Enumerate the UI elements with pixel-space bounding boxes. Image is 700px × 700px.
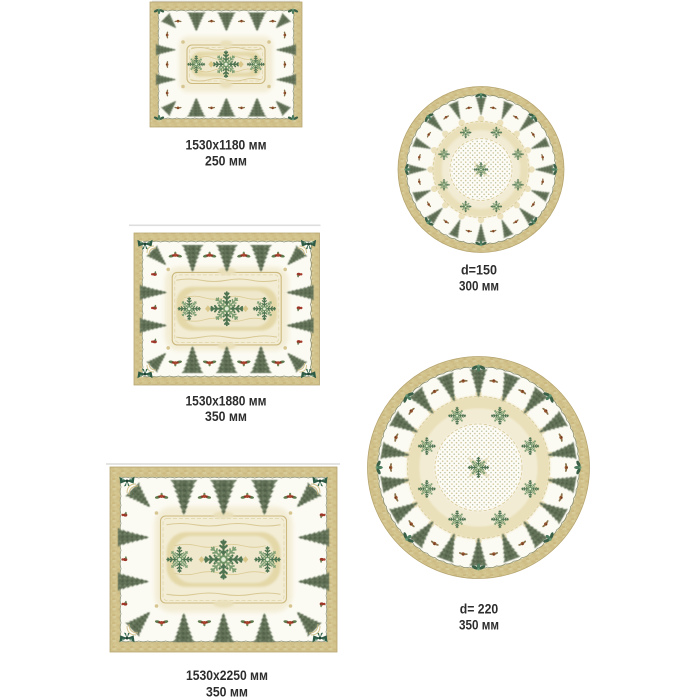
svg-text:300 мм: 300 мм [459,277,499,293]
svg-text:350 мм: 350 мм [206,684,248,700]
svg-text:250 мм: 250 мм [205,152,247,168]
svg-text:1530x1180 мм: 1530x1180 мм [186,136,267,152]
svg-text:1530x1880 мм: 1530x1880 мм [186,392,267,408]
svg-text:d=150: d=150 [461,262,497,278]
svg-text:1530x2250 мм: 1530x2250 мм [186,667,268,683]
svg-text:350 мм: 350 мм [205,408,247,424]
svg-text:d= 220: d= 220 [460,601,499,617]
svg-text:350 мм: 350 мм [459,616,499,632]
